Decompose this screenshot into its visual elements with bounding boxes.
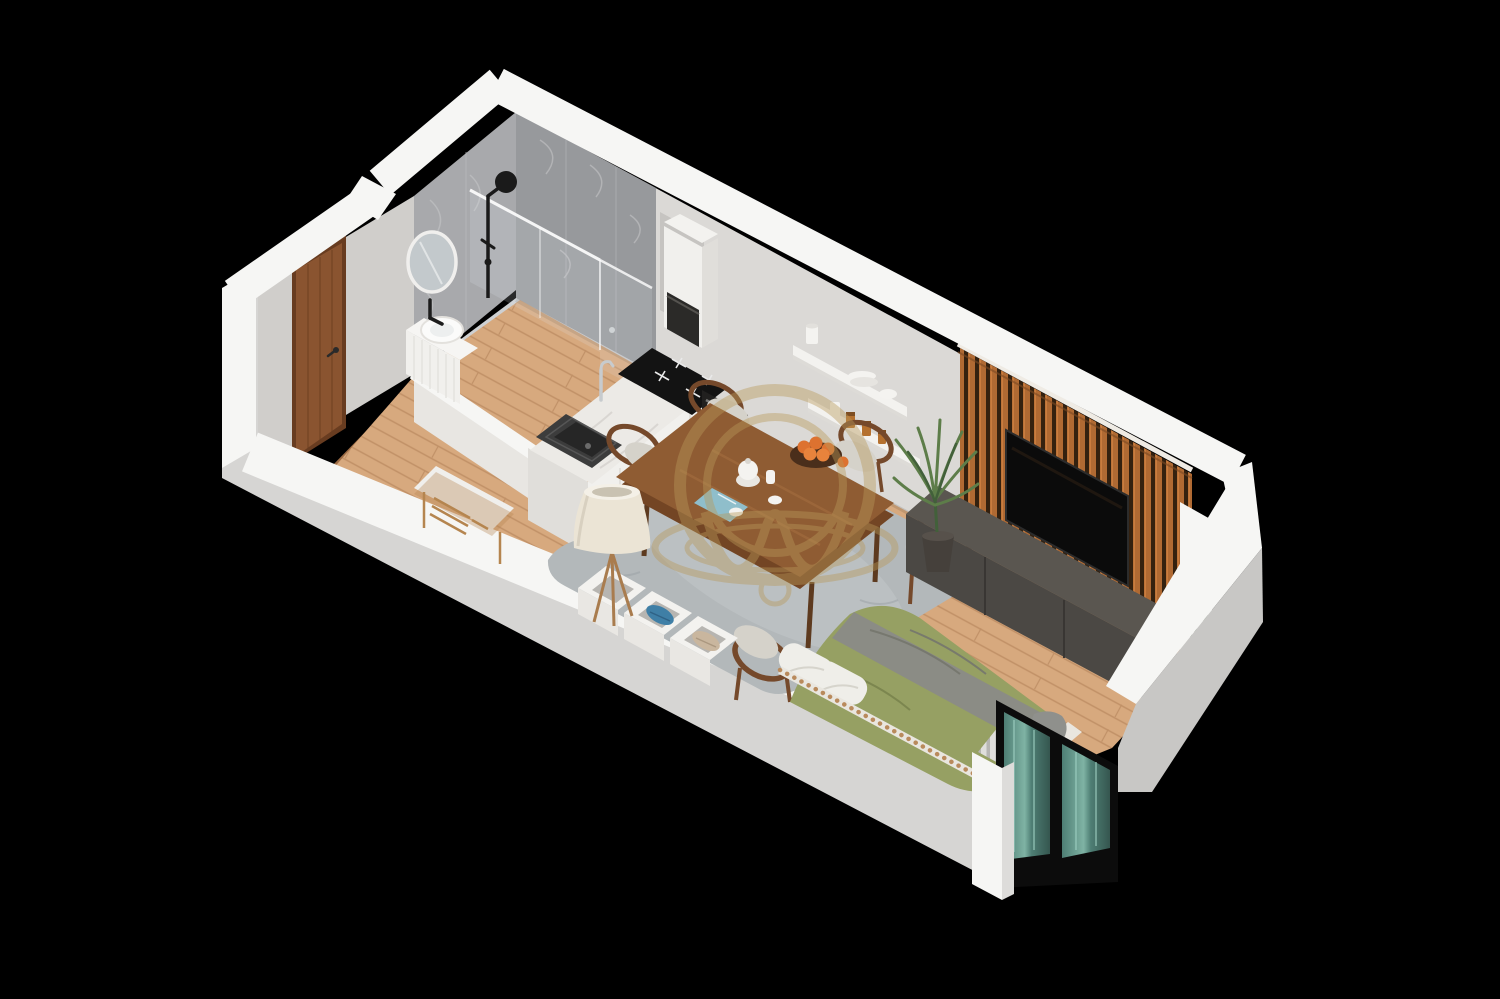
isometric-floorplan <box>0 0 1500 999</box>
floorplan-render-stage <box>0 0 1500 999</box>
entry-door <box>292 235 346 462</box>
shower-door-handle <box>609 327 615 333</box>
round-mirror <box>408 232 456 292</box>
fridge-cabinet <box>660 212 718 348</box>
window-corner-cap <box>972 752 1002 900</box>
